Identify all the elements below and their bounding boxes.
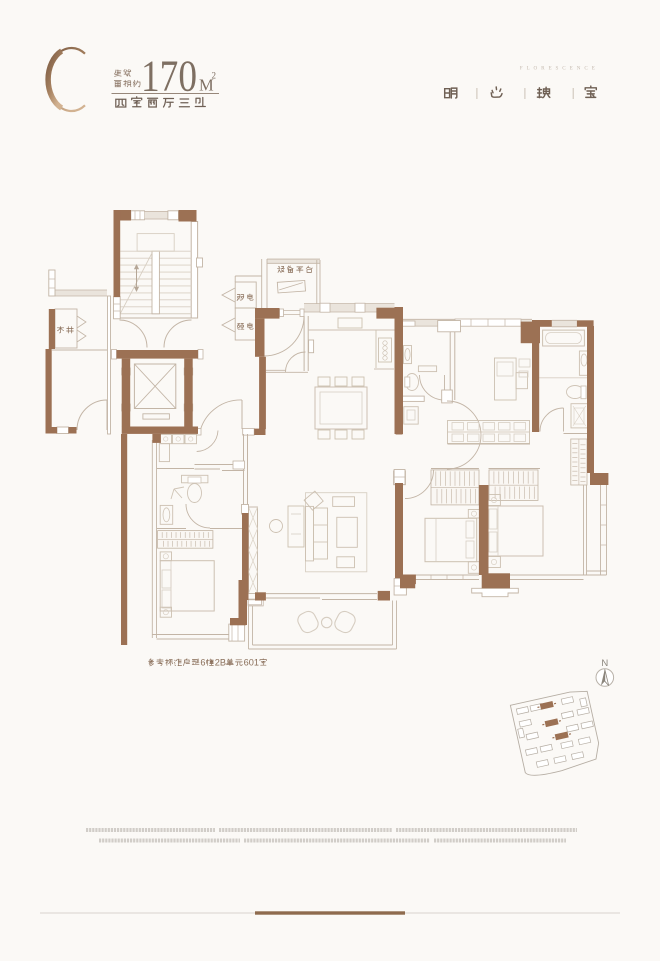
svg-text:2: 2: [212, 71, 217, 81]
svg-text:N: N: [601, 658, 608, 669]
svg-text:6: 6: [200, 658, 205, 668]
svg-text:601: 601: [244, 658, 259, 668]
svg-text:F L O R E S C E N C E: F L O R E S C E N C E: [520, 66, 596, 72]
svg-text:2B: 2B: [215, 658, 226, 668]
